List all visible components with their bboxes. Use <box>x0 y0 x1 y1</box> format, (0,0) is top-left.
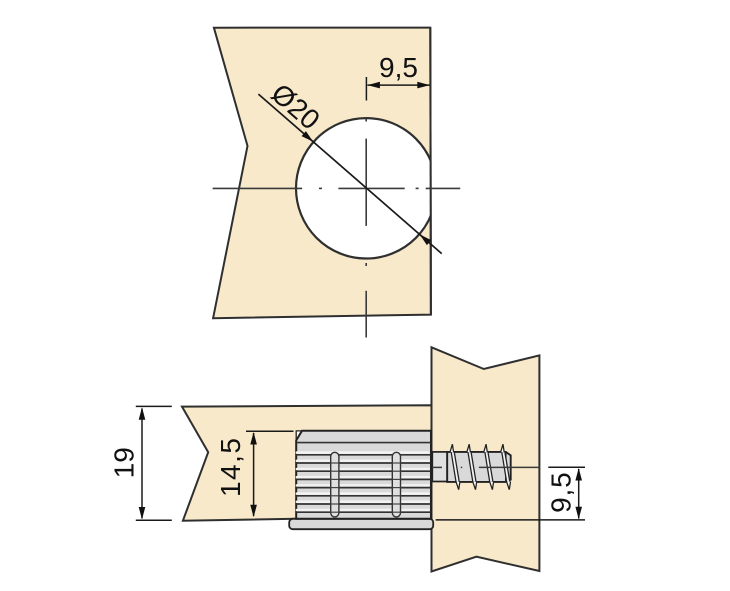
svg-text:19: 19 <box>108 447 139 478</box>
svg-text:9,5: 9,5 <box>379 52 418 83</box>
svg-text:14,5: 14,5 <box>215 437 246 498</box>
svg-text:9,5: 9,5 <box>546 472 577 513</box>
